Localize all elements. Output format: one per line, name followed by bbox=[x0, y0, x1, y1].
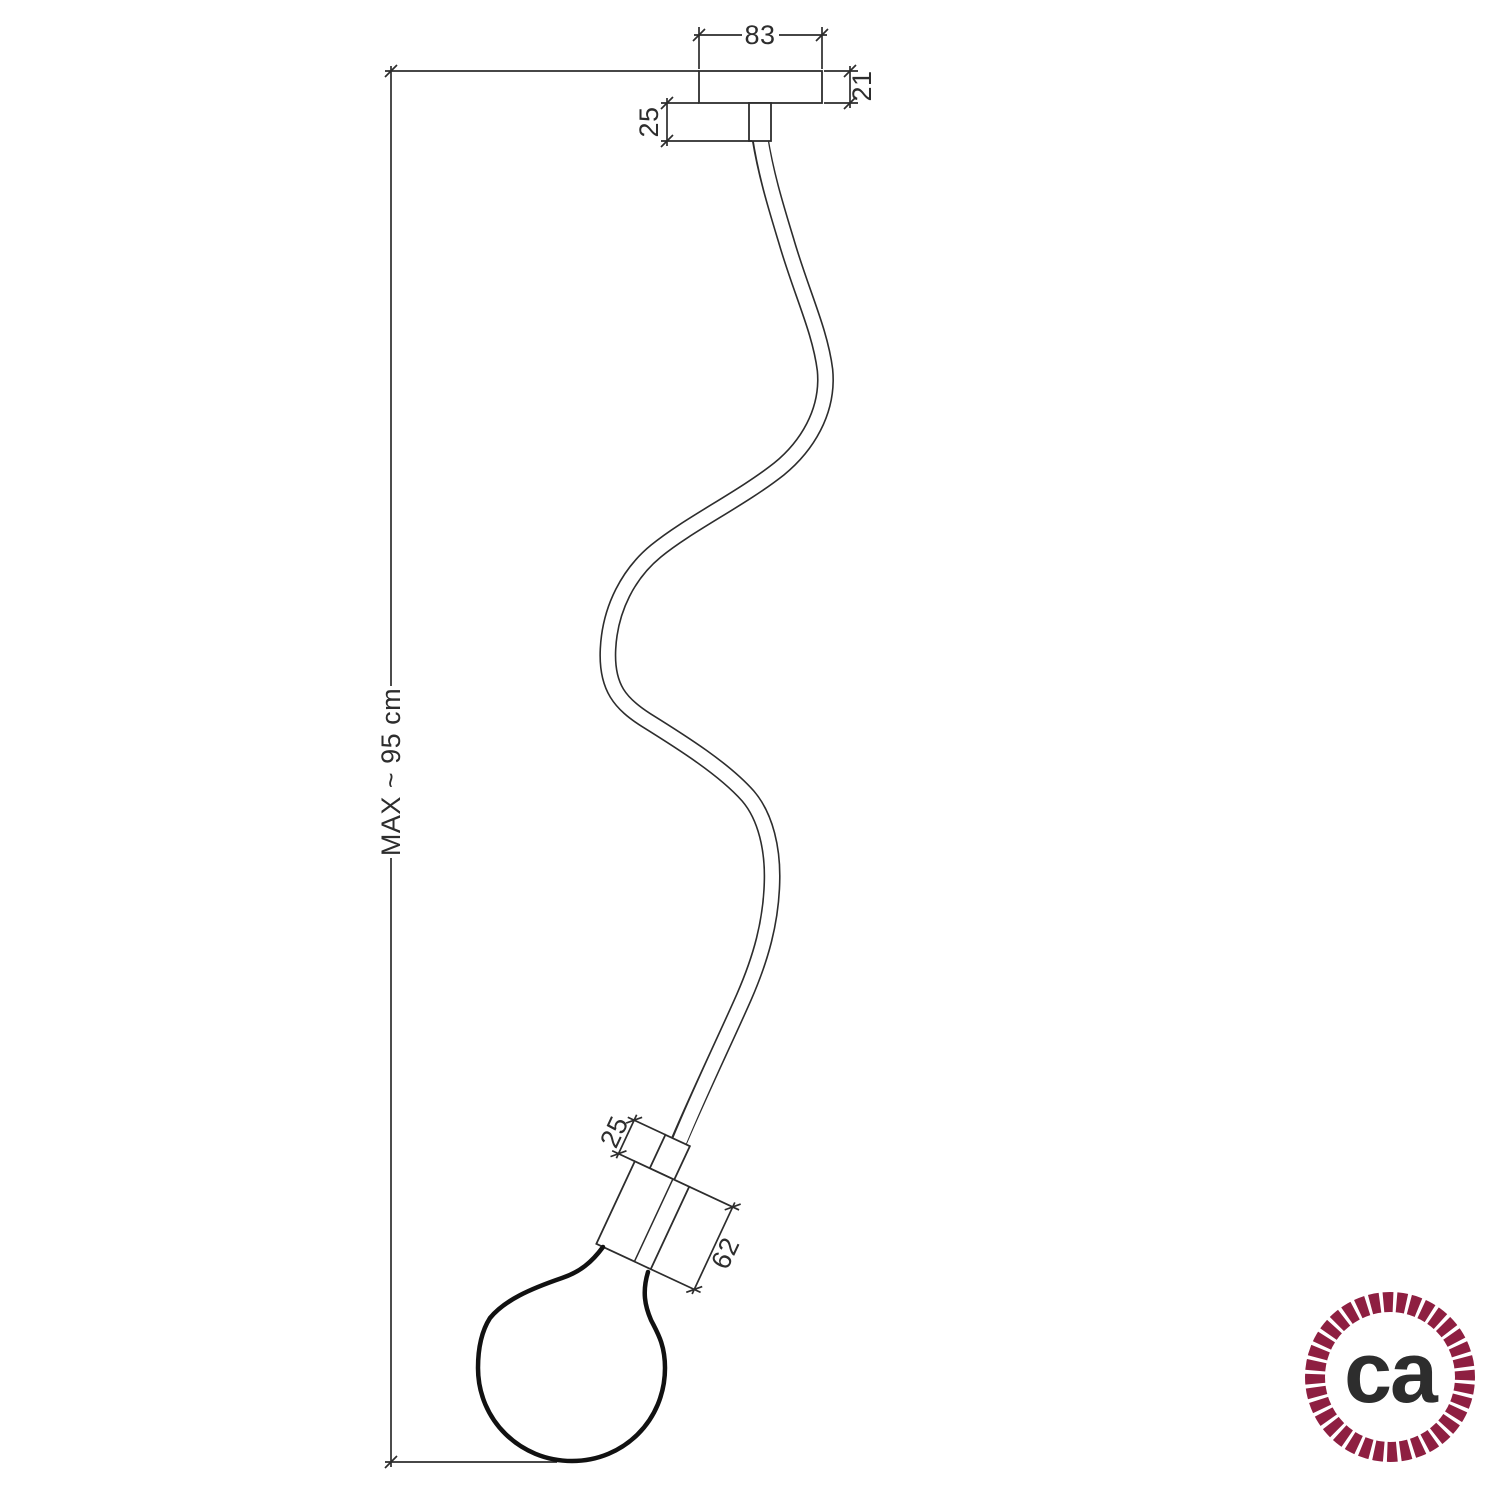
ceiling-rose-stub bbox=[749, 103, 771, 141]
holder-length-label: 62 bbox=[705, 1233, 745, 1274]
top-stub-label: 25 bbox=[634, 106, 664, 137]
rose-width-label: 83 bbox=[744, 20, 775, 50]
lamp-holder-assembly: 25 62 bbox=[552, 1103, 776, 1307]
brand-logo: ca bbox=[1301, 1288, 1479, 1466]
flexible-stem bbox=[608, 136, 826, 1150]
flexible-stem-outline bbox=[608, 138, 826, 1148]
drawing-canvas: MAX ~ 95 cm 83 21 25 bbox=[0, 0, 1500, 1500]
light-bulb-outline bbox=[478, 1247, 665, 1461]
top-stub-extension-lines bbox=[661, 103, 752, 141]
top-stub-dimension bbox=[661, 97, 752, 147]
ceiling-rose bbox=[699, 71, 822, 141]
logo-text: ca bbox=[1344, 1325, 1439, 1421]
rose-height-label: 21 bbox=[847, 70, 877, 101]
overall-dimension-label: MAX ~ 95 cm bbox=[376, 688, 406, 856]
pendant-lamp-diagram: MAX ~ 95 cm 83 21 25 bbox=[0, 0, 1500, 1500]
ceiling-rose-body bbox=[699, 71, 822, 103]
